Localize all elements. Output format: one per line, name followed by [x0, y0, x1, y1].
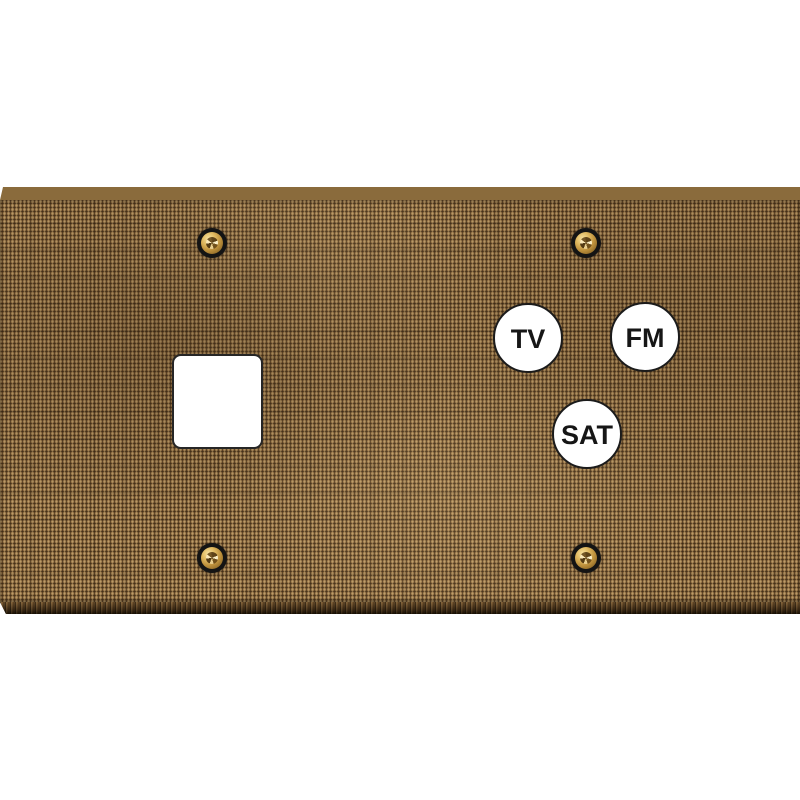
screw-recess-icon: [580, 552, 592, 564]
plate-fabric-face: TV FM SAT: [0, 200, 800, 602]
screw-bottom-left: [197, 543, 227, 573]
screw-recess-icon: [580, 237, 592, 249]
screw-head-icon: [575, 547, 597, 569]
plate-top-bevel-edge: [0, 187, 800, 200]
plate-bottom-bevel-edge: [0, 602, 800, 614]
port-sat: SAT: [552, 399, 622, 469]
port-tv: TV: [493, 303, 563, 373]
screw-top-left: [197, 228, 227, 258]
screw-bottom-right: [571, 543, 601, 573]
screw-head-icon: [575, 232, 597, 254]
screw-head-icon: [201, 232, 223, 254]
screw-top-right: [571, 228, 601, 258]
port-tv-label: TV: [511, 326, 546, 353]
product-photo-stage: TV FM SAT: [0, 0, 800, 800]
port-fm: FM: [610, 302, 680, 372]
keystone-cutout: [172, 354, 263, 449]
port-fm-label: FM: [626, 325, 665, 352]
port-sat-label: SAT: [561, 422, 613, 449]
screw-head-icon: [201, 547, 223, 569]
screw-recess-icon: [206, 552, 218, 564]
screw-recess-icon: [206, 237, 218, 249]
wall-plate: TV FM SAT: [0, 187, 800, 614]
